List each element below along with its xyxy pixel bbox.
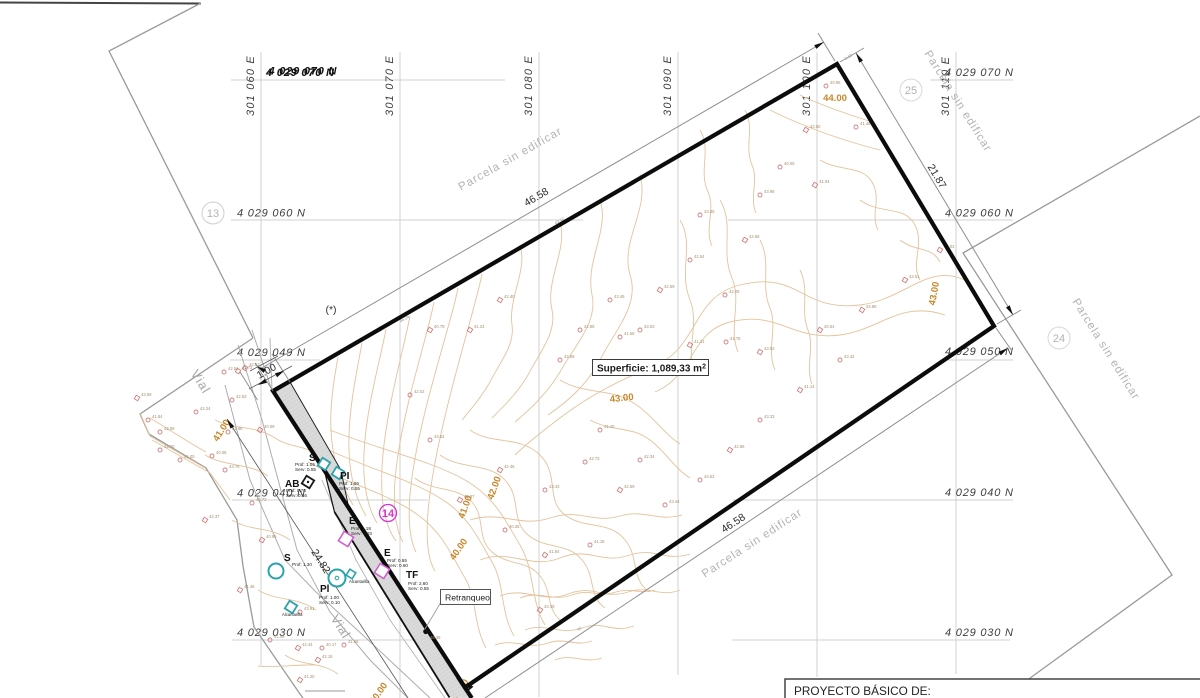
svg-text:42.54: 42.54 xyxy=(694,254,705,259)
svg-text:TF: TF xyxy=(406,570,418,581)
svg-text:42.69: 42.69 xyxy=(664,284,675,289)
svg-text:41.00: 41.00 xyxy=(184,454,195,459)
svg-text:46.38: 46.38 xyxy=(430,635,441,640)
svg-text:43.59: 43.59 xyxy=(141,392,152,397)
svg-text:301 090 E: 301 090 E xyxy=(662,55,674,116)
svg-text:43.43: 43.43 xyxy=(549,484,560,489)
svg-text:Prof: 1.30: Prof: 1.30 xyxy=(292,562,312,567)
svg-text:Serv: 0.93: Serv: 0.93 xyxy=(351,531,372,536)
svg-text:4 029 040 N: 4 029 040 N xyxy=(945,487,1014,499)
svg-text:42.44: 42.44 xyxy=(302,642,313,647)
svg-text:41.20: 41.20 xyxy=(304,674,315,679)
svg-text:41.46: 41.46 xyxy=(244,584,255,589)
svg-text:43.86: 43.86 xyxy=(866,304,877,309)
svg-text:42.69: 42.69 xyxy=(624,484,635,489)
svg-text:40.54: 40.54 xyxy=(824,324,835,329)
svg-text:41.14: 41.14 xyxy=(804,384,815,389)
svg-text:43.35: 43.35 xyxy=(704,209,715,214)
svg-text:Serv: 0.55: Serv: 0.55 xyxy=(339,486,360,491)
svg-text:43.03: 43.03 xyxy=(644,324,655,329)
svg-text:Serv: 0.10: Serv: 0.10 xyxy=(319,600,340,605)
svg-text:43.33: 43.33 xyxy=(764,414,775,419)
svg-text:42.86: 42.86 xyxy=(564,354,575,359)
svg-text:42.56: 42.56 xyxy=(749,234,760,239)
svg-text:43.62: 43.62 xyxy=(704,474,715,479)
svg-text:14: 14 xyxy=(382,508,395,520)
svg-text:4 029 030 N: 4 029 030 N xyxy=(945,627,1014,639)
svg-text:Superficie: 1,089,33 m2: Superficie: 1,089,33 m2 xyxy=(597,364,706,375)
svg-text:43.76: 43.76 xyxy=(229,464,240,469)
svg-text:40.05: 40.05 xyxy=(784,161,795,166)
svg-text:42.46: 42.46 xyxy=(504,464,515,469)
svg-text:42.50: 42.50 xyxy=(810,124,821,129)
svg-text:41.64: 41.64 xyxy=(549,549,560,554)
svg-text:43.49: 43.49 xyxy=(544,604,555,609)
svg-text:41.72: 41.72 xyxy=(256,497,267,502)
svg-text:4 029 070 N: 4 029 070 N xyxy=(268,66,338,78)
svg-text:(*): (*) xyxy=(325,304,336,316)
svg-text:4 029 060 N: 4 029 060 N xyxy=(237,208,306,220)
svg-text:42.86: 42.86 xyxy=(734,444,745,449)
svg-text:42.73: 42.73 xyxy=(589,456,600,461)
svg-text:41.58: 41.58 xyxy=(624,331,635,336)
svg-text:40.09: 40.09 xyxy=(264,424,275,429)
svg-text:41.26: 41.26 xyxy=(348,639,359,644)
svg-text:43.52: 43.52 xyxy=(434,434,445,439)
svg-text:42.34: 42.34 xyxy=(644,454,655,459)
svg-text:41.78: 41.78 xyxy=(730,336,741,341)
svg-text:S: S xyxy=(284,553,291,564)
svg-text:41.48: 41.48 xyxy=(274,634,285,639)
svg-text:301 060 E: 301 060 E xyxy=(245,55,257,116)
svg-text:Serv: 0.55: Serv: 0.55 xyxy=(295,467,316,472)
svg-text:41.18: 41.18 xyxy=(594,539,605,544)
svg-text:43.44: 43.44 xyxy=(669,499,680,504)
svg-text:44.00: 44.00 xyxy=(823,93,847,104)
svg-text:41.21: 41.21 xyxy=(694,339,705,344)
svg-text:301 070 E: 301 070 E xyxy=(384,55,396,116)
svg-text:24: 24 xyxy=(1053,333,1065,345)
svg-text:41.66: 41.66 xyxy=(232,426,243,431)
svg-text:40.95: 40.95 xyxy=(830,80,841,85)
svg-text:Alcantarilla: Alcantarilla xyxy=(349,579,370,584)
svg-text:42.51: 42.51 xyxy=(909,274,920,279)
svg-text:42.88: 42.88 xyxy=(584,324,595,329)
svg-text:Retranqueo: Retranqueo xyxy=(445,593,490,603)
svg-text:42.87: 42.87 xyxy=(464,494,475,499)
svg-text:13: 13 xyxy=(207,208,219,220)
svg-text:40.08: 40.08 xyxy=(216,450,227,455)
svg-text:40.35: 40.35 xyxy=(509,524,520,529)
svg-text:25: 25 xyxy=(905,85,917,97)
svg-text:43.98: 43.98 xyxy=(764,189,775,194)
svg-text:4 029 070 N: 4 029 070 N xyxy=(945,67,1014,79)
svg-text:42.58: 42.58 xyxy=(164,426,175,431)
svg-text:40.95: 40.95 xyxy=(266,534,277,539)
svg-text:43.46: 43.46 xyxy=(614,294,625,299)
svg-text:42.19: 42.19 xyxy=(322,654,333,659)
svg-text:4 029 030 N: 4 029 030 N xyxy=(237,627,306,639)
svg-text:41.84: 41.84 xyxy=(152,414,163,419)
svg-text:4 029 060 N: 4 029 060 N xyxy=(945,208,1014,220)
svg-text:42.40: 42.40 xyxy=(504,294,515,299)
svg-text:42.37: 42.37 xyxy=(209,514,220,519)
svg-text:40.17: 40.17 xyxy=(326,642,337,647)
svg-text:42.83: 42.83 xyxy=(236,394,247,399)
svg-text:301 080 E: 301 080 E xyxy=(523,55,535,116)
svg-text:Serv: 0.60: Serv: 0.60 xyxy=(387,563,408,568)
svg-text:Serv: 0.55: Serv: 0.55 xyxy=(408,586,429,591)
svg-text:41.04: 41.04 xyxy=(819,179,830,184)
svg-text:43.52: 43.52 xyxy=(764,346,775,351)
svg-text:43.42: 43.42 xyxy=(844,354,855,359)
svg-text:PROYECTO BÁSICO DE:: PROYECTO BÁSICO DE: xyxy=(794,684,931,698)
svg-text:41.24: 41.24 xyxy=(474,324,485,329)
svg-text:Pl: Pl xyxy=(320,584,330,595)
svg-text:Alcantarilla: Alcantarilla xyxy=(282,612,303,617)
svg-text:40.79: 40.79 xyxy=(434,324,445,329)
svg-text:42.09: 42.09 xyxy=(729,289,740,294)
svg-text:42.72: 42.72 xyxy=(242,365,253,370)
svg-text:Serv: 0.16: Serv: 0.16 xyxy=(286,493,307,498)
svg-text:42.02: 42.02 xyxy=(414,389,425,394)
svg-text:43.91: 43.91 xyxy=(304,606,315,611)
svg-text:41.40: 41.40 xyxy=(604,424,615,429)
svg-text:42.24: 42.24 xyxy=(200,406,211,411)
svg-text:42.70: 42.70 xyxy=(164,444,175,449)
